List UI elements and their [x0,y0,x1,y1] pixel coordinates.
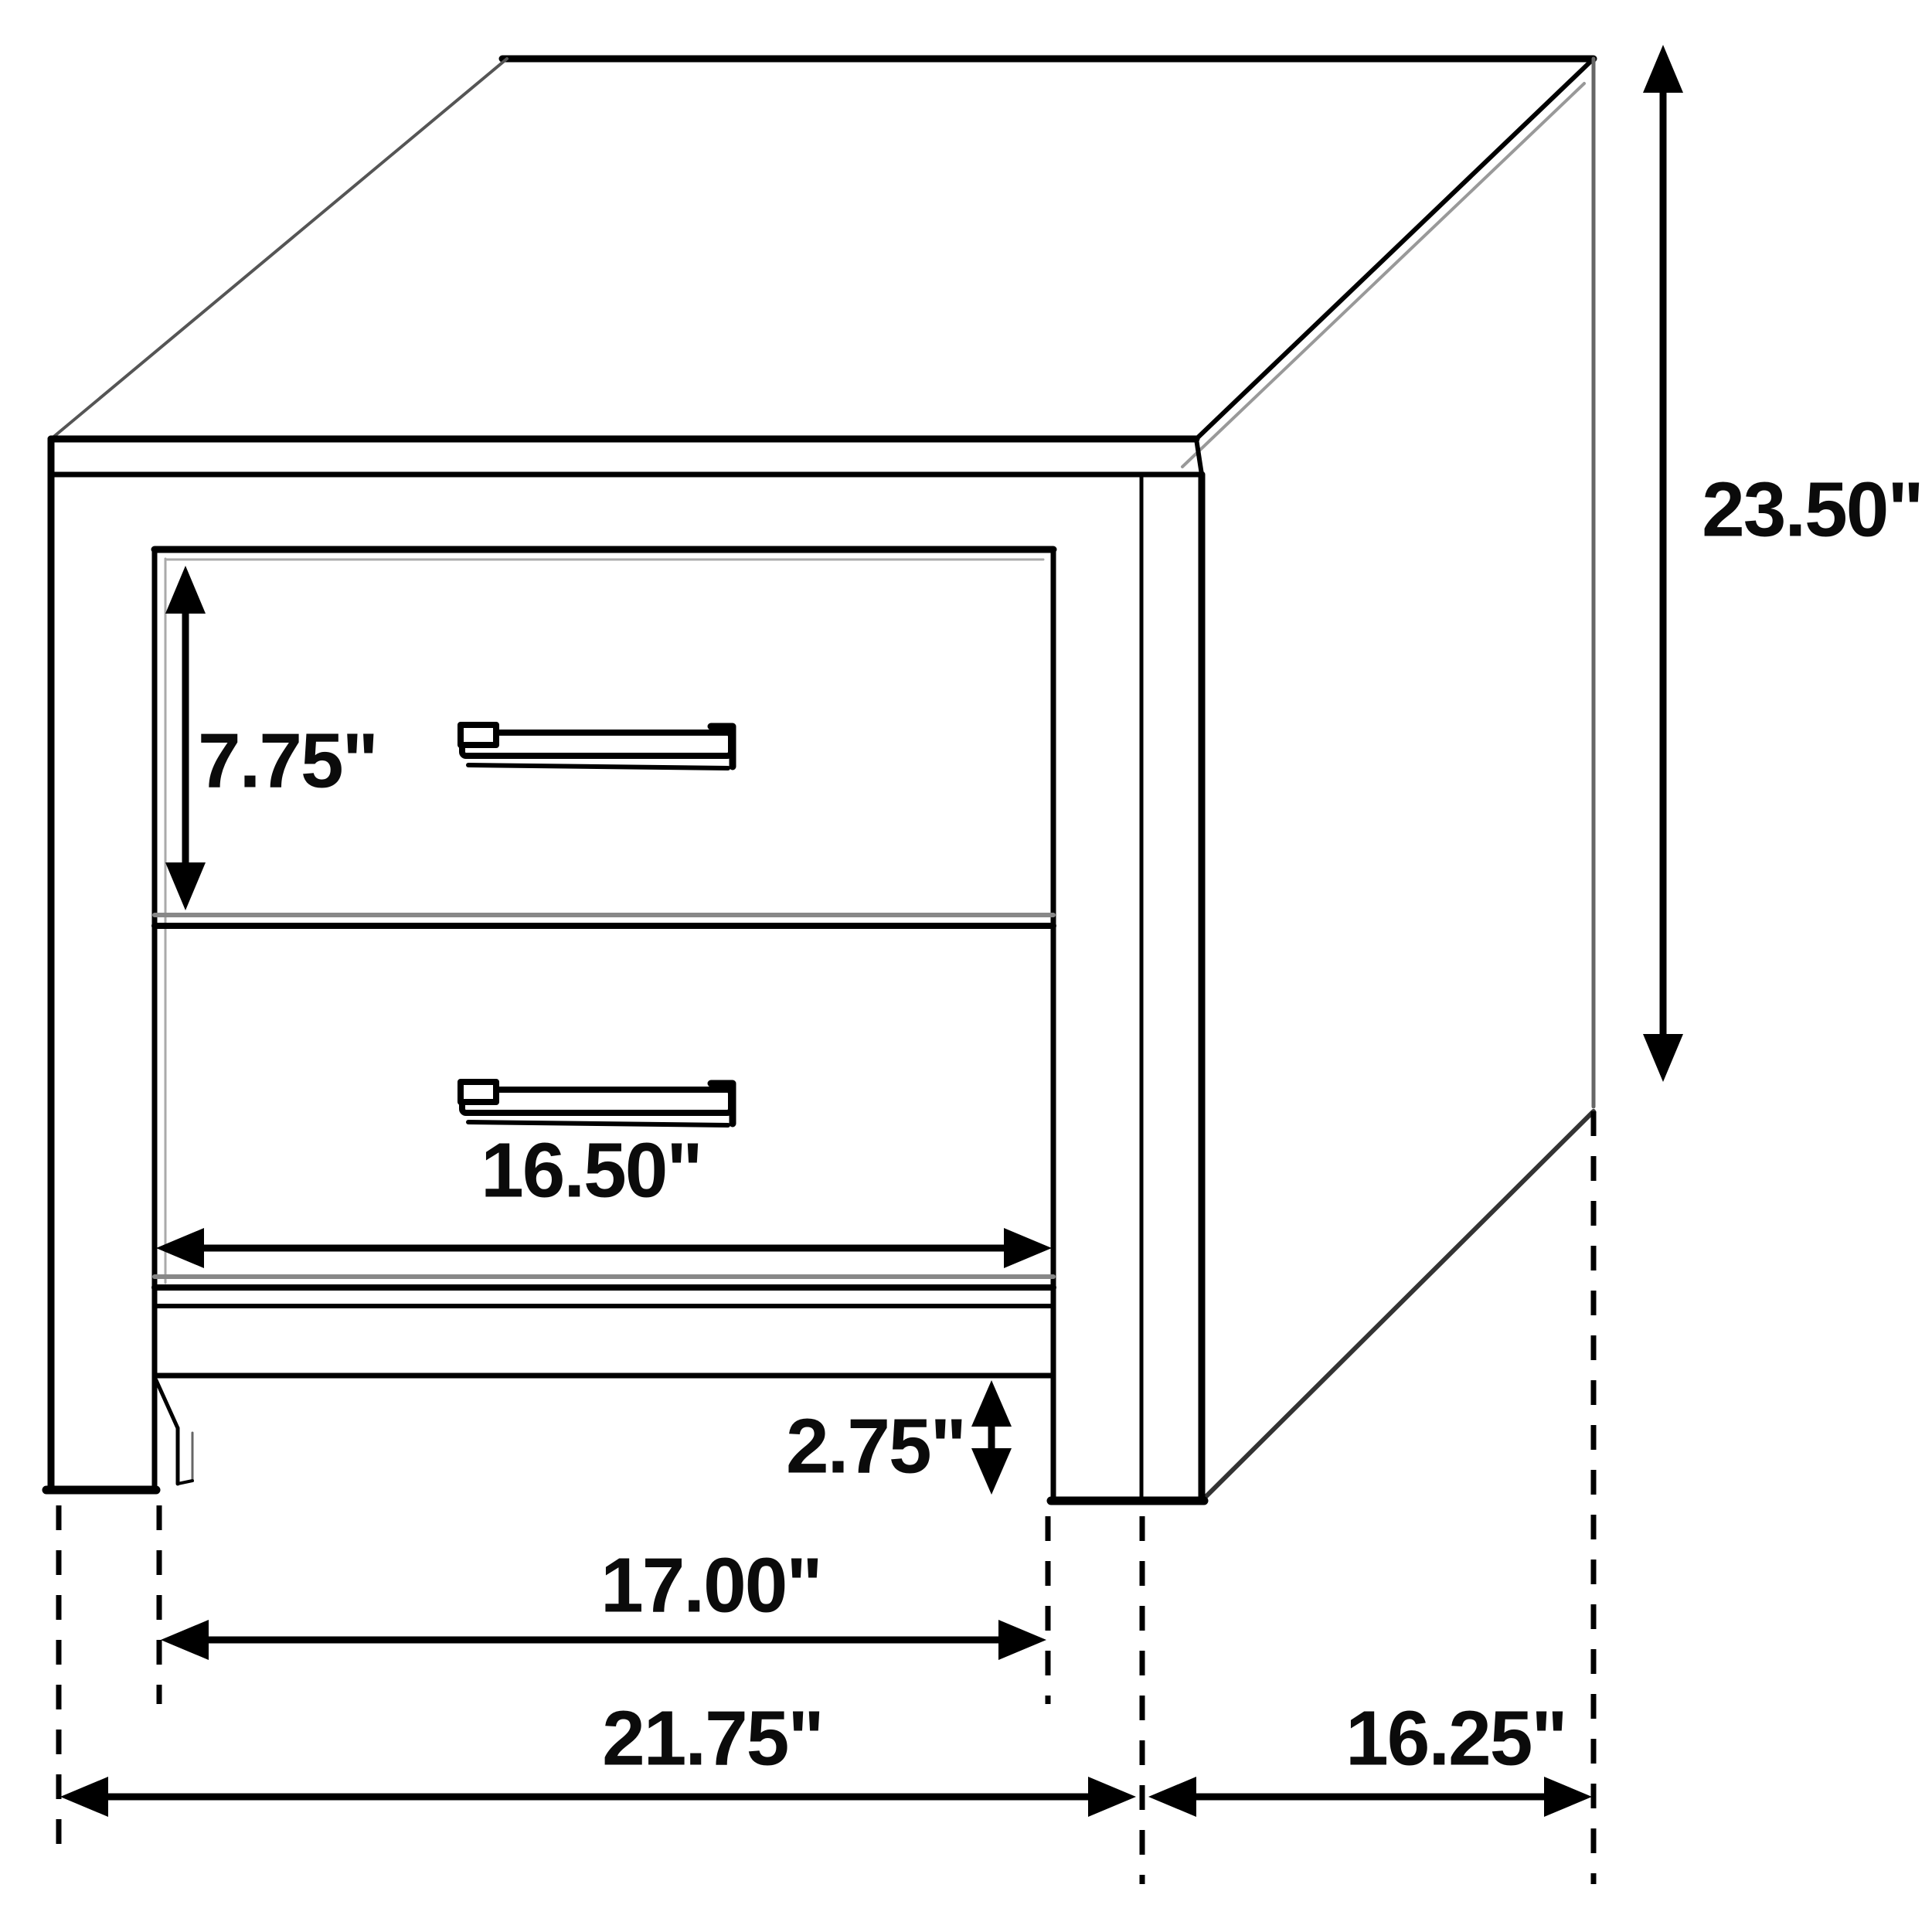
dim-overall-height-arrow [1643,45,1683,1082]
dim-label-drawer-width: 16.50" [481,1127,702,1216]
dim-overall-width-arrow [60,1777,1136,1817]
dim-label-overall-height: 23.50" [1702,466,1923,555]
dim-label-foot-height: 2.75" [786,1403,965,1492]
dimension-diagram: 23.50" 7.75" 16.50" 2.75" 17.00" 21.75" … [0,0,1932,1932]
dim-label-top-drawer-height: 7.75" [198,717,377,806]
dim-label-overall-width: 21.75" [602,1695,823,1784]
nightstand-line-drawing [0,0,1932,1932]
dim-label-leg-inner-width: 17.00" [600,1542,821,1631]
dim-label-overall-depth: 16.25" [1345,1695,1566,1784]
